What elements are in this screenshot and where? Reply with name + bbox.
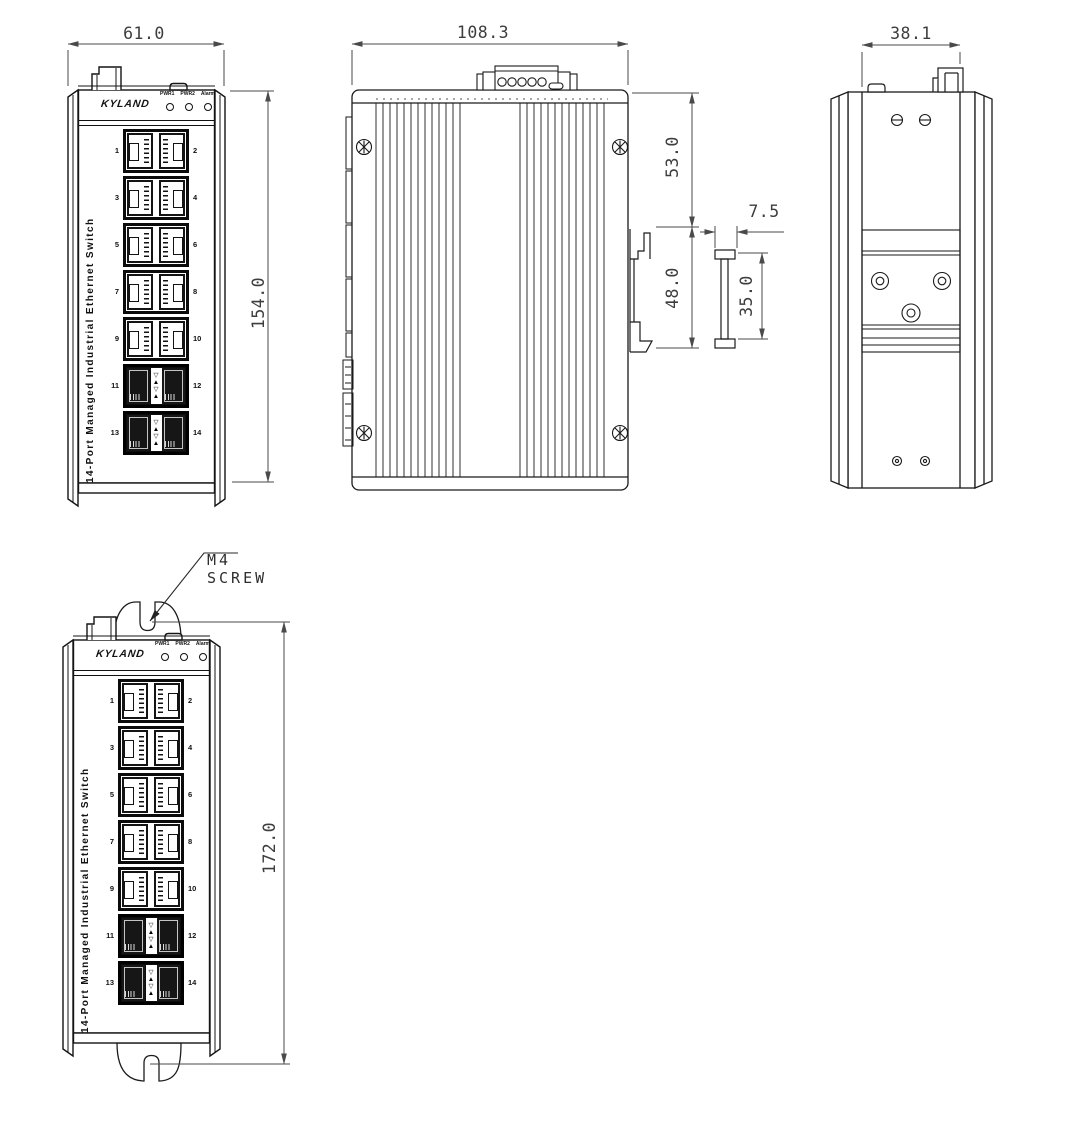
- combo-port-pair: ▽▲▽▲: [118, 914, 184, 958]
- rj45-port: [159, 321, 185, 357]
- din-mount-plate: [862, 230, 960, 352]
- combo-port: [157, 965, 180, 1001]
- port-number: 14: [188, 978, 202, 987]
- port-number: 3: [105, 193, 119, 202]
- port-number: 6: [193, 240, 207, 249]
- rear-top-button: [868, 84, 885, 92]
- rj45-port-pair: [118, 773, 184, 817]
- mount-boss: [872, 273, 889, 290]
- rj45-port-pair: [118, 679, 184, 723]
- pwr2-led-icon: [180, 653, 188, 661]
- port-row-9-10: 9 10: [65, 317, 228, 361]
- led-labels: PWR1 PWR2 Alarm: [160, 91, 215, 97]
- rj45-port: [154, 730, 180, 766]
- port-row-5-6: 5 6: [60, 773, 223, 817]
- combo-port-pair: ▽▲▽▲: [118, 961, 184, 1005]
- port-number: 1: [105, 146, 119, 155]
- din-latch-tab: [92, 67, 121, 90]
- din-clip-profile: [630, 229, 652, 352]
- port-row-5-6: 5 6: [65, 223, 228, 267]
- din-latch-tab: [87, 617, 116, 640]
- rj45-port: [127, 227, 153, 263]
- phillips-screw-icon: [357, 140, 628, 441]
- alarm-led-icon: [199, 653, 207, 661]
- front-view-wall-mount: KYLAND PWR1 PWR2 Alarm 14-Port Managed I…: [60, 640, 223, 1040]
- led-label-pwr1: PWR1: [160, 91, 174, 97]
- dim-wall-mount-height: 172.0: [261, 812, 279, 884]
- alarm-led-icon: [204, 103, 212, 111]
- port-number: 2: [193, 146, 207, 155]
- dim-front-width: 61.0: [108, 25, 180, 43]
- port-row-1-2: 1 2: [60, 679, 223, 723]
- led-labels: PWR1 PWR2 Alarm: [155, 641, 210, 647]
- rj45-port-pair: [123, 223, 189, 267]
- updown-arrows-icon: ▽▲▽▲: [146, 918, 157, 954]
- combo-port: [162, 368, 185, 404]
- port-number: 7: [105, 287, 119, 296]
- rj45-port: [127, 133, 153, 169]
- port-number: 5: [105, 240, 119, 249]
- rj45-port: [154, 777, 180, 813]
- port-number: 13: [100, 978, 114, 987]
- port-number: 12: [188, 931, 202, 940]
- port-number: 4: [188, 743, 202, 752]
- callout-line-2: SCREW: [207, 569, 267, 587]
- port-row-7-8: 7 8: [60, 820, 223, 864]
- technical-drawing-canvas: KYLAND PWR1 PWR2 Alarm 14-Port Managed I…: [0, 0, 1088, 1124]
- port-row-13-14: 13 ▽▲▽▲ 14: [60, 961, 223, 1005]
- port-number: 11: [105, 381, 119, 390]
- m4-screw-callout: M4 SCREW: [207, 551, 267, 587]
- wall-mount-bracket-bottom: [117, 1043, 181, 1081]
- updown-arrows-icon: ▽▲▽▲: [151, 415, 162, 451]
- brand-logo: KYLAND: [95, 648, 145, 660]
- port-number: 9: [100, 884, 114, 893]
- port-number: 8: [193, 287, 207, 296]
- port-number: 10: [193, 334, 207, 343]
- rear-view: [831, 68, 992, 488]
- led-label-pwr2: PWR2: [180, 91, 194, 97]
- reset-button: [165, 634, 182, 641]
- combo-port: [122, 965, 145, 1001]
- rj45-port: [154, 683, 180, 719]
- rj45-port: [159, 180, 185, 216]
- mount-boss: [902, 304, 920, 322]
- port-row-9-10: 9 10: [60, 867, 223, 911]
- front-ports-edge: [343, 117, 353, 446]
- port-number: 9: [105, 334, 119, 343]
- port-number: 14: [193, 428, 207, 437]
- cooling-fins-right: [520, 103, 604, 477]
- port-row-3-4: 3 4: [60, 726, 223, 770]
- din-rail-cross-section: [715, 250, 735, 348]
- dim-rail-height: 35.0: [738, 260, 756, 332]
- pwr2-led-icon: [185, 103, 193, 111]
- cooling-fins-left: [376, 103, 460, 477]
- port-row-13-14: 13 ▽▲▽▲ 14: [65, 411, 228, 455]
- rj45-port-pair: [123, 270, 189, 314]
- led-label-alarm: Alarm: [196, 641, 210, 647]
- panel-divider: [79, 120, 214, 126]
- combo-port: [122, 918, 145, 954]
- combo-port: [127, 415, 150, 451]
- port-number: 10: [188, 884, 202, 893]
- led-label-alarm: Alarm: [201, 91, 215, 97]
- port-row-11-12: 11 ▽▲▽▲ 12: [65, 364, 228, 408]
- port-number: 8: [188, 837, 202, 846]
- port-number: 6: [188, 790, 202, 799]
- rj45-port: [127, 321, 153, 357]
- rj45-port-pair: [123, 317, 189, 361]
- port-number: 2: [188, 696, 202, 705]
- rear-top-din-tab: [933, 68, 963, 92]
- port-number: 5: [100, 790, 114, 799]
- rj45-port: [159, 227, 185, 263]
- port-number: 7: [100, 837, 114, 846]
- port-row-11-12: 11 ▽▲▽▲ 12: [60, 914, 223, 958]
- combo-port-pair: ▽▲▽▲: [123, 411, 189, 455]
- combo-port: [127, 368, 150, 404]
- rj45-port-pair: [118, 867, 184, 911]
- port-number: 3: [100, 743, 114, 752]
- mount-boss: [934, 273, 951, 290]
- rj45-port-pair: [118, 820, 184, 864]
- combo-port: [157, 918, 180, 954]
- rj45-port: [154, 871, 180, 907]
- panel-divider: [74, 670, 209, 676]
- port-number: 4: [193, 193, 207, 202]
- callout-line-1: M4: [207, 551, 267, 569]
- pwr1-led-icon: [161, 653, 169, 661]
- dim-rail-zone: 48.0: [664, 252, 682, 324]
- rj45-port: [159, 274, 185, 310]
- port-row-3-4: 3 4: [65, 176, 228, 220]
- rj45-port-pair: [118, 726, 184, 770]
- rj45-port-pair: [123, 129, 189, 173]
- brand-logo: KYLAND: [100, 98, 150, 110]
- combo-port: [162, 415, 185, 451]
- pwr1-led-icon: [166, 103, 174, 111]
- reset-button: [170, 84, 187, 91]
- rj45-port: [127, 180, 153, 216]
- dim-side-depth: 108.3: [447, 24, 519, 42]
- rj45-port: [159, 133, 185, 169]
- dim-front-height: 154.0: [250, 267, 268, 339]
- port-row-1-2: 1 2: [65, 129, 228, 173]
- port-number: 13: [105, 428, 119, 437]
- led-label-pwr2: PWR2: [175, 641, 189, 647]
- updown-arrows-icon: ▽▲▽▲: [146, 965, 157, 1001]
- rj45-port: [122, 683, 148, 719]
- front-view-din-rail: KYLAND PWR1 PWR2 Alarm 14-Port Managed I…: [65, 90, 228, 490]
- rj45-port: [122, 730, 148, 766]
- rj45-port: [122, 824, 148, 860]
- port-number: 11: [100, 931, 114, 940]
- dim-rail-depth: 7.5: [728, 203, 800, 221]
- combo-port-pair: ▽▲▽▲: [123, 364, 189, 408]
- port-number: 12: [193, 381, 207, 390]
- port-row-7-8: 7 8: [65, 270, 228, 314]
- rj45-port: [154, 824, 180, 860]
- rj45-port-pair: [123, 176, 189, 220]
- rj45-port: [127, 274, 153, 310]
- led-label-pwr1: PWR1: [155, 641, 169, 647]
- rj45-port: [122, 871, 148, 907]
- dim-rear-width: 38.1: [875, 25, 947, 43]
- power-terminal-block: [477, 66, 577, 90]
- rj45-port: [122, 777, 148, 813]
- updown-arrows-icon: ▽▲▽▲: [151, 368, 162, 404]
- port-number: 1: [100, 696, 114, 705]
- rear-screw-icon: [892, 115, 931, 466]
- dim-top-to-rail: 53.0: [664, 121, 682, 193]
